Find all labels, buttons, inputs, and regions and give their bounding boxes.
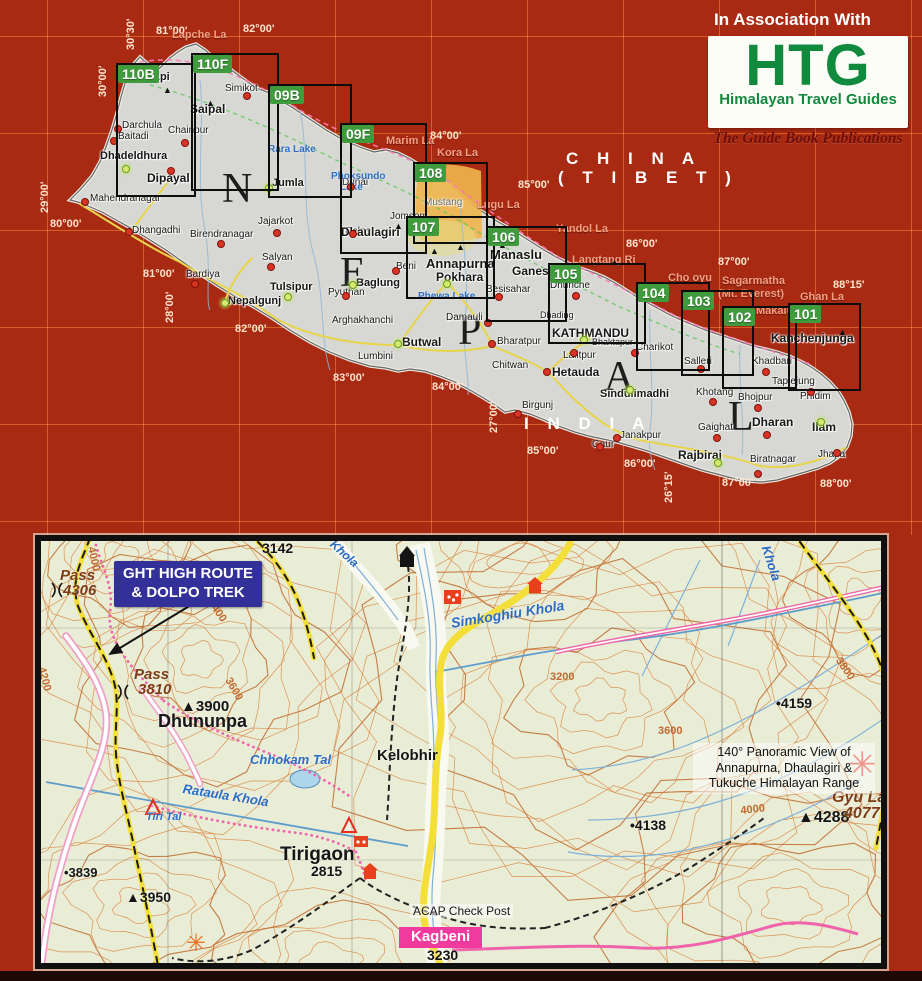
topo-label: 2815 <box>311 864 342 878</box>
place-label: Butwal <box>402 336 441 348</box>
sheet-box-110F <box>191 53 279 191</box>
graticule-label: 87°00' <box>718 257 750 268</box>
association-text: In Association With <box>714 10 871 30</box>
contour-line <box>487 543 550 574</box>
pass-label: Kora La <box>437 148 478 159</box>
graticule-label: 85°00' <box>518 180 550 191</box>
place-label: Bharatpur <box>497 337 541 347</box>
topo-pass-label: 4077 <box>844 806 880 822</box>
topo-label: •3839 <box>64 866 97 879</box>
city-dot <box>817 418 825 426</box>
place-label: Tulsipur <box>270 282 313 293</box>
place-label: Biratnagar <box>750 455 796 465</box>
contour-line <box>707 853 868 959</box>
photo-edge-strip <box>0 971 922 981</box>
contour-line <box>667 815 881 963</box>
place-label: Dhangadhi <box>132 226 180 236</box>
city-dot <box>488 340 496 348</box>
city-dot <box>284 293 292 301</box>
place-label: Salyan <box>262 253 293 263</box>
sheet-label-104: 104 <box>638 284 669 302</box>
topo-sample-map: 3142▲3900DhununpaKelobhirTirigaon2815•38… <box>35 535 887 969</box>
sheet-label-105: 105 <box>550 265 581 283</box>
panorama-line3: Tukuche Himalayan Range <box>695 776 873 792</box>
place-label: Lumbini <box>358 352 393 362</box>
graticule-label: 27°00' <box>489 402 500 434</box>
city-dot <box>81 198 89 206</box>
nepal-index-map: 81°00'82°00'84°00'85°00'86°00'87°00'88°1… <box>0 0 922 535</box>
pink-route-south <box>452 923 858 950</box>
pass-label: Ghan La <box>800 292 844 303</box>
topo-pass-label: Pass <box>134 667 169 682</box>
pass-label: Lapche La <box>172 30 226 41</box>
contour-line <box>432 559 786 851</box>
place-label: Bhojpur <box>738 393 772 403</box>
city-dot <box>596 443 604 451</box>
city-dot <box>349 281 357 289</box>
city-dot <box>273 229 281 237</box>
country-label-china: C H I N A <box>566 150 701 167</box>
graticule-label: 80°00' <box>50 219 82 230</box>
contour-line <box>771 541 881 688</box>
city-dot <box>613 434 621 442</box>
sheet-label-09B: 09B <box>270 86 304 104</box>
place-label: Bardiya <box>186 270 220 280</box>
sheet-label-107: 107 <box>408 218 439 236</box>
contour-line <box>525 650 677 754</box>
contour-line <box>783 541 882 677</box>
topo-label: Kelobhir <box>377 748 438 763</box>
city-dot <box>754 404 762 412</box>
place-label: Jhapa <box>818 450 845 460</box>
graticule-label: 88°00' <box>820 479 852 490</box>
topo-label: 3142 <box>262 541 293 555</box>
place-label: Chitwan <box>492 361 528 371</box>
sheet-label-09F: 09F <box>342 125 374 143</box>
place-label: Gaighat <box>698 423 733 433</box>
city-dot <box>191 280 199 288</box>
topo-label: ACAP Check Post <box>410 904 513 918</box>
graticule-label: 81°00' <box>143 269 175 280</box>
map-cover-page: 81°00'82°00'84°00'85°00'86°00'87°00'88°1… <box>0 0 922 981</box>
chhokam-tal-lake <box>290 770 320 788</box>
topo-label: •4159 <box>776 696 812 710</box>
htg-logo-box: HTG Himalayan Travel Guides <box>708 36 908 128</box>
house-icon-2 <box>362 863 378 879</box>
contour-elevation-label: 3200 <box>550 672 574 683</box>
city-dot <box>709 398 717 406</box>
city-dot <box>833 449 841 457</box>
graticule-label: 82°00' <box>243 24 275 35</box>
sheet-label-103: 103 <box>683 292 714 310</box>
city-dot <box>754 470 762 478</box>
city-dot <box>713 434 721 442</box>
contour-line <box>298 942 363 964</box>
topo-pass-label: 4306 <box>63 583 96 598</box>
topo-label: Dhununpa <box>158 712 247 730</box>
panoramic-view-note: 140° Panoramic View of Annapurna, Dhaula… <box>693 743 875 794</box>
graticule-label: 83°00' <box>333 373 365 384</box>
city-dot <box>221 299 229 307</box>
place-label: Birgunj <box>522 401 553 411</box>
city-dot <box>342 292 350 300</box>
city-dot <box>514 410 522 418</box>
graticule-label: 86°00' <box>626 239 658 250</box>
simkoghiu-khola-river <box>436 585 881 672</box>
city-dot <box>392 267 400 275</box>
fort-icon <box>444 590 461 604</box>
topo-label: ▲3950 <box>126 890 171 904</box>
htg-logo-tagline: The Guide Book Publications <box>700 130 916 148</box>
pass-label: Sagarmatha <box>722 276 785 287</box>
place-label: Birendranagar <box>190 230 253 240</box>
country-label-tibet: ( T I B E T ) <box>558 169 738 186</box>
viewpoint-star-icon: ✳ <box>186 932 206 956</box>
topo-label: ▲4288 <box>798 810 849 826</box>
contour-line <box>772 541 881 689</box>
contour-line <box>186 888 460 963</box>
panorama-line1: 140° Panoramic View of <box>695 745 873 761</box>
topo-water-label: Tiri Tal <box>146 812 181 823</box>
graticule-label: 30°00' <box>98 66 109 98</box>
city-dot <box>394 340 402 348</box>
place-label: Dharan <box>752 416 793 428</box>
city-dot <box>714 459 722 467</box>
graticule-label: 87°00' <box>722 478 754 489</box>
place-label: Phidim <box>800 392 831 402</box>
lodge-icon <box>354 836 368 847</box>
place-label: Janakpur <box>620 431 661 441</box>
htg-logo-text: HTG <box>708 38 908 93</box>
contour-line <box>181 640 224 678</box>
graticule-label: 84°00' <box>432 382 464 393</box>
topo-label: 3230 <box>427 948 458 962</box>
graticule-label: 28°00' <box>165 292 176 324</box>
place-label: Khotang <box>696 388 733 398</box>
topo-water-label: Chhokam Tal <box>250 753 331 766</box>
route-title-line1: GHT HIGH ROUTE <box>123 565 253 584</box>
sheet-label-102: 102 <box>724 308 755 326</box>
place-label: Baglung <box>356 278 400 289</box>
graticule-label: 88°15' <box>833 280 865 291</box>
graticule-label: 26°15' <box>664 472 675 504</box>
sheet-label-101: 101 <box>790 305 821 323</box>
panorama-line2: Annapurna, Dhaulagiri & <box>695 761 873 777</box>
contour-line <box>574 678 627 721</box>
contour-line <box>279 930 384 963</box>
city-dot <box>217 240 225 248</box>
place-label: Arghakhanchi <box>332 316 393 326</box>
place-label: Nepalgunj <box>228 296 281 307</box>
city-dot <box>570 349 578 357</box>
htg-logo-subtitle: Himalayan Travel Guides <box>708 91 908 108</box>
graticule-label: 30°30' <box>126 19 137 51</box>
contour-line <box>761 887 822 925</box>
contour-elevation-label: 3600 <box>658 726 682 737</box>
city-dot <box>267 263 275 271</box>
graticule-label: 29°00' <box>40 182 51 214</box>
contour-line <box>682 843 881 963</box>
route-title-line2: & DOLPO TREK <box>123 584 253 603</box>
place-label: Sindulimadhi <box>600 389 669 400</box>
city-dot <box>626 386 634 394</box>
kagbeni-village-band: Kagbeni <box>399 927 482 948</box>
place-label: Lalitpur <box>563 351 596 361</box>
graticule-label: 86°00' <box>624 459 656 470</box>
topo-pass-label: 3810 <box>138 682 171 697</box>
graticule-label: 82°00' <box>235 324 267 335</box>
sheet-box-110B <box>116 63 196 197</box>
sheet-label-110F: 110F <box>193 55 232 73</box>
contour-line <box>839 578 881 620</box>
topo-label: Tirigaon <box>280 845 355 864</box>
graticule-label: 85°00' <box>527 446 559 457</box>
sheet-label-106: 106 <box>488 228 519 246</box>
graticule-label: 84°00' <box>430 131 462 142</box>
place-label: Hetauda <box>552 366 599 378</box>
sheet-label-110B: 110B <box>118 65 159 83</box>
route-title-box: GHT HIGH ROUTE & DOLPO TREK <box>114 561 262 607</box>
topo-label: •4138 <box>630 818 666 832</box>
place-label: Jajarkot <box>258 217 293 227</box>
city-dot <box>763 431 771 439</box>
sheet-label-108: 108 <box>415 164 446 182</box>
city-dot <box>125 228 133 236</box>
place-label: Damauli <box>446 313 483 323</box>
city-dot <box>543 368 551 376</box>
